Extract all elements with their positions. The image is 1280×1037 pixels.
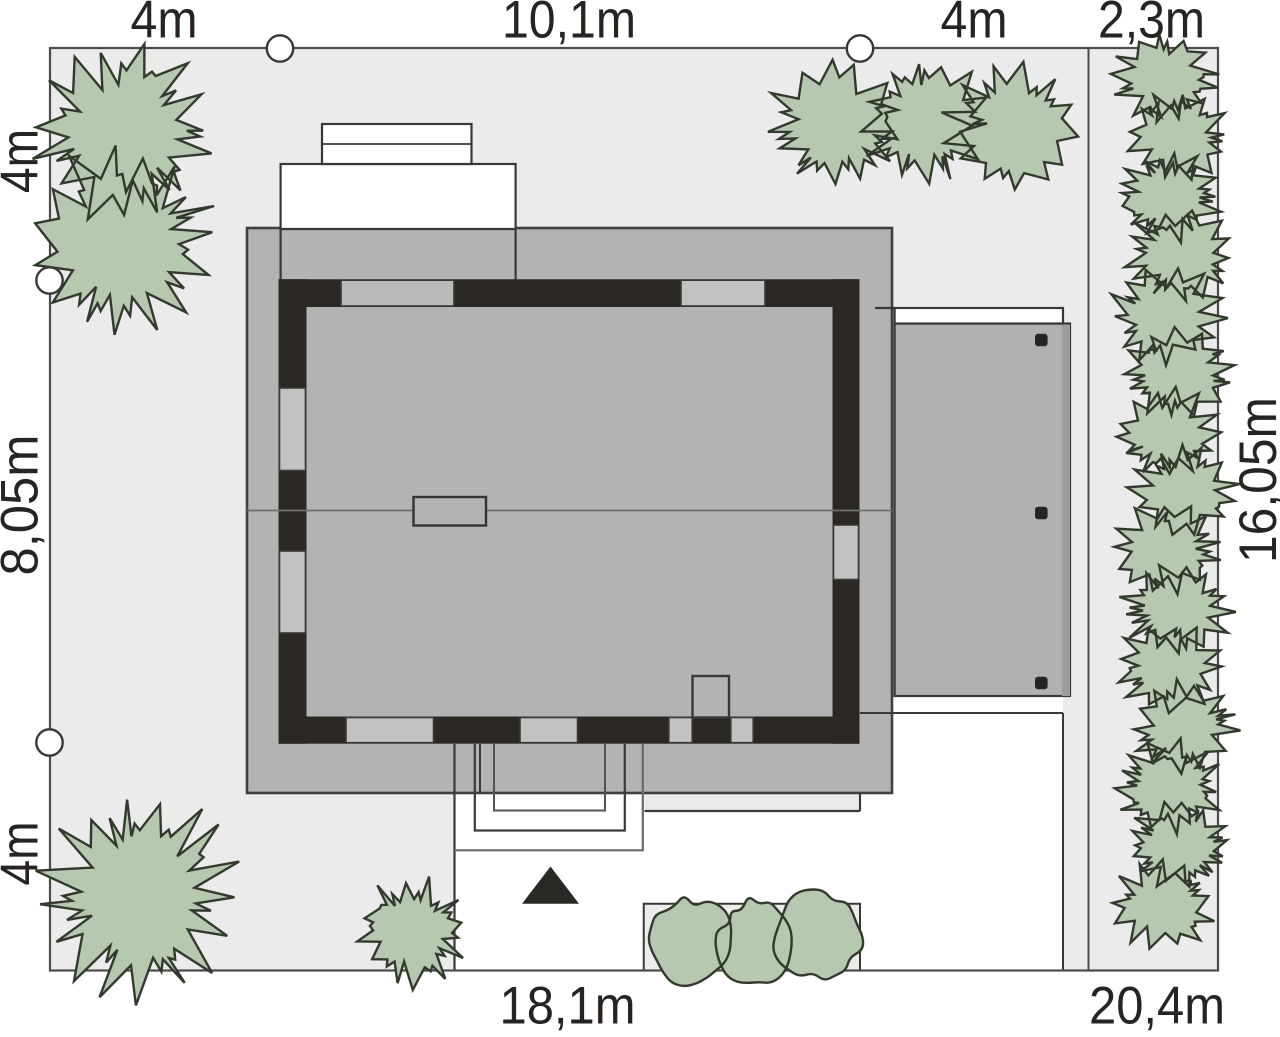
svg-text:2,3m: 2,3m (1098, 0, 1205, 50)
svg-text:20,4m: 20,4m (1089, 977, 1225, 1033)
svg-text:4m: 4m (0, 822, 50, 886)
svg-text:10,1m: 10,1m (502, 0, 636, 50)
svg-text:4m: 4m (131, 0, 198, 50)
svg-text:16,05m: 16,05m (1229, 397, 1280, 563)
svg-text:4m: 4m (941, 0, 1008, 50)
svg-text:4m: 4m (0, 129, 50, 193)
svg-text:18,1m: 18,1m (500, 977, 636, 1033)
svg-text:8,05m: 8,05m (0, 435, 50, 576)
